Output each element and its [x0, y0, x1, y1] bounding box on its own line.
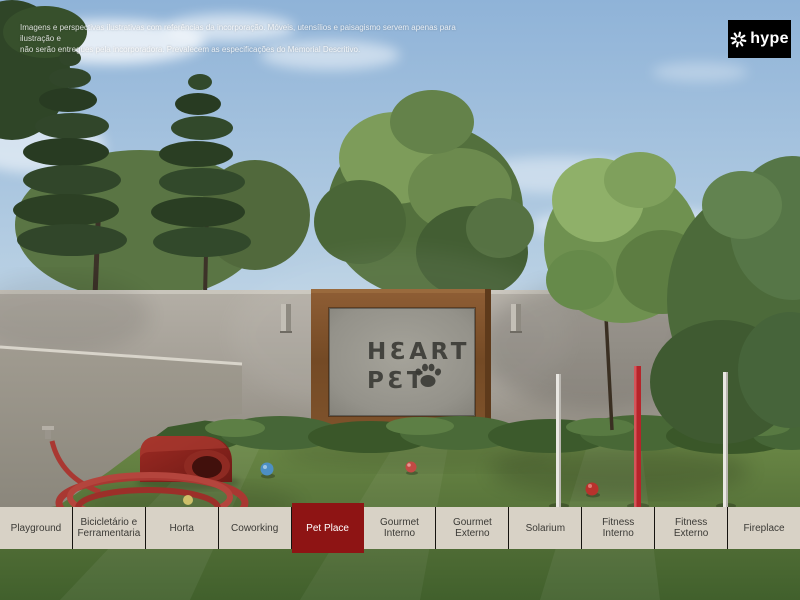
disclaimer-text: Imagens e perspectivas ilustrativas com …: [20, 22, 480, 55]
sign-line1: HƐART: [367, 339, 470, 365]
blue-ball: [261, 463, 274, 476]
tab-horta[interactable]: Horta: [146, 507, 219, 549]
red-ball: [586, 483, 599, 496]
tab-fitness-interno[interactable]: Fitness Interno: [582, 507, 655, 549]
pet-place-viewer: HƐART PƐT: [0, 0, 800, 600]
logo-wordmark: hype: [750, 30, 789, 48]
tab-solarium[interactable]: Solarium: [509, 507, 582, 549]
disclaimer-line2: não serão entregues pela incorporadora. …: [20, 44, 480, 55]
tab-fireplace[interactable]: Fireplace: [728, 507, 800, 549]
tab-fitness-externo[interactable]: Fitness Externo: [655, 507, 728, 549]
wall-sconce-left: [280, 304, 292, 333]
tab-bicicletario-ferramentaria[interactable]: Bicicletário e Ferramentaria: [73, 507, 146, 549]
tab-pet-place[interactable]: Pet Place: [292, 503, 364, 553]
tab-coworking[interactable]: Coworking: [219, 507, 292, 549]
pinwheel-asterisk-icon: [730, 31, 747, 48]
hype-logo: hype: [728, 20, 791, 58]
wall-sconce-right: [510, 304, 522, 333]
yellow-ball: [183, 495, 193, 505]
pink-ball: [406, 462, 417, 473]
tab-gourmet-externo[interactable]: Gourmet Externo: [436, 507, 509, 549]
amenity-tabbar: Playground Bicicletário e Ferramentaria …: [0, 507, 800, 549]
disclaimer-line1: Imagens e perspectivas ilustrativas com …: [20, 22, 480, 44]
heart-pet-sign: HƐART PƐT: [311, 289, 491, 436]
tab-playground[interactable]: Playground: [0, 507, 73, 549]
tab-gourmet-interno[interactable]: Gourmet Interno: [364, 507, 437, 549]
